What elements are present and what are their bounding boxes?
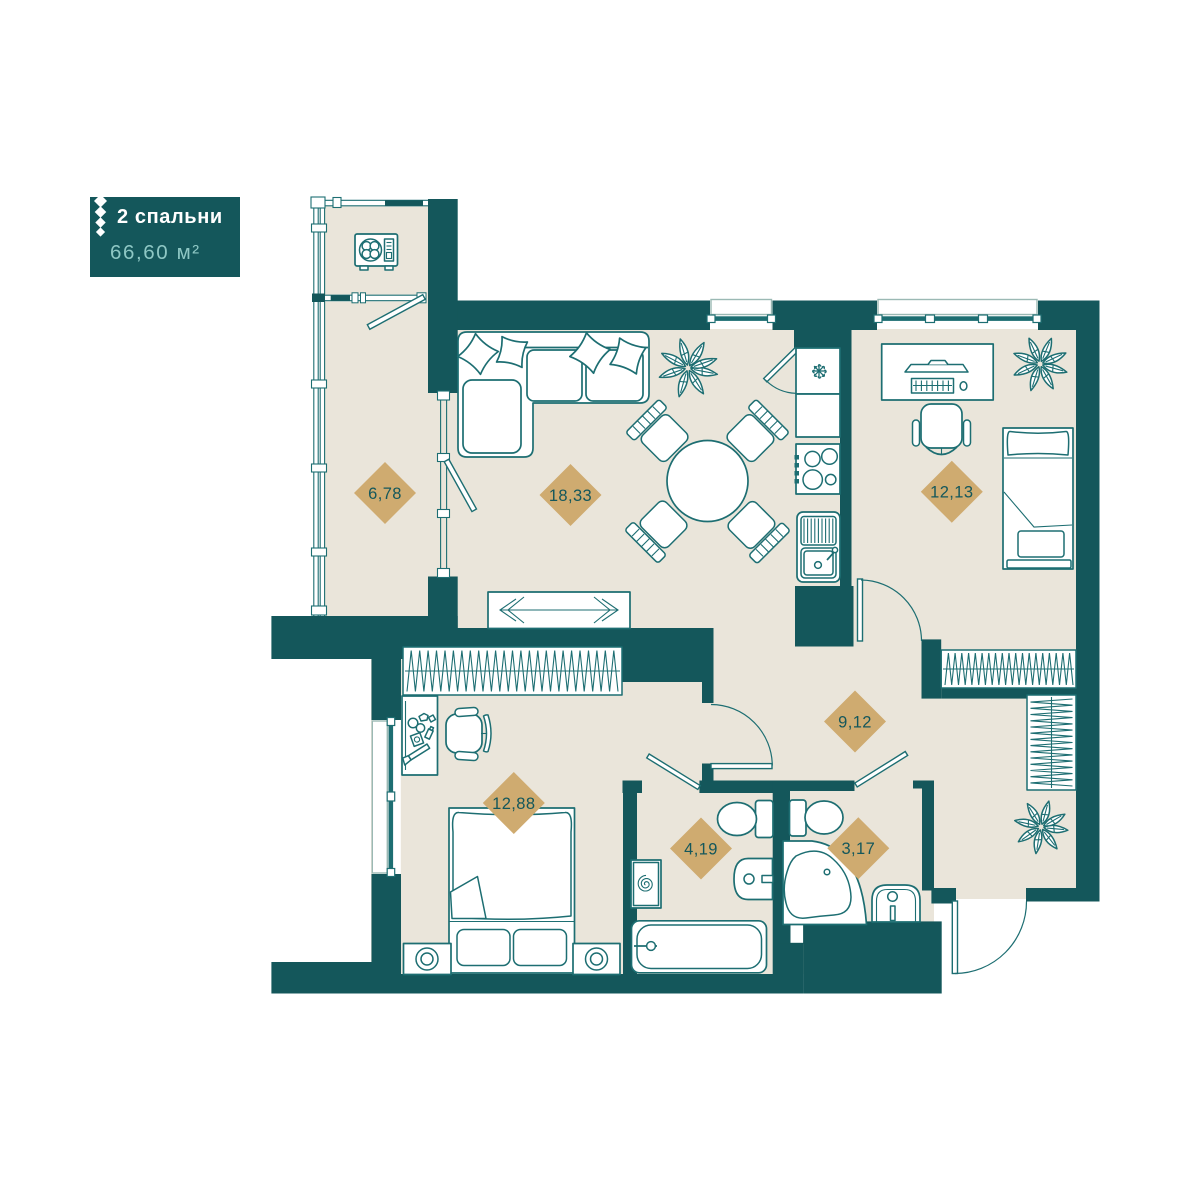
svg-text:9,12: 9,12 [838,713,872,731]
svg-text:66,60 м²: 66,60 м² [110,241,201,264]
svg-text:3,17: 3,17 [841,840,875,858]
svg-text:2 спальни: 2 спальни [117,206,223,228]
svg-text:12,88: 12,88 [492,795,535,813]
svg-text:4,19: 4,19 [684,840,718,858]
svg-text:12,13: 12,13 [930,484,973,502]
svg-text:18,33: 18,33 [549,487,592,505]
svg-text:6,78: 6,78 [368,485,402,503]
